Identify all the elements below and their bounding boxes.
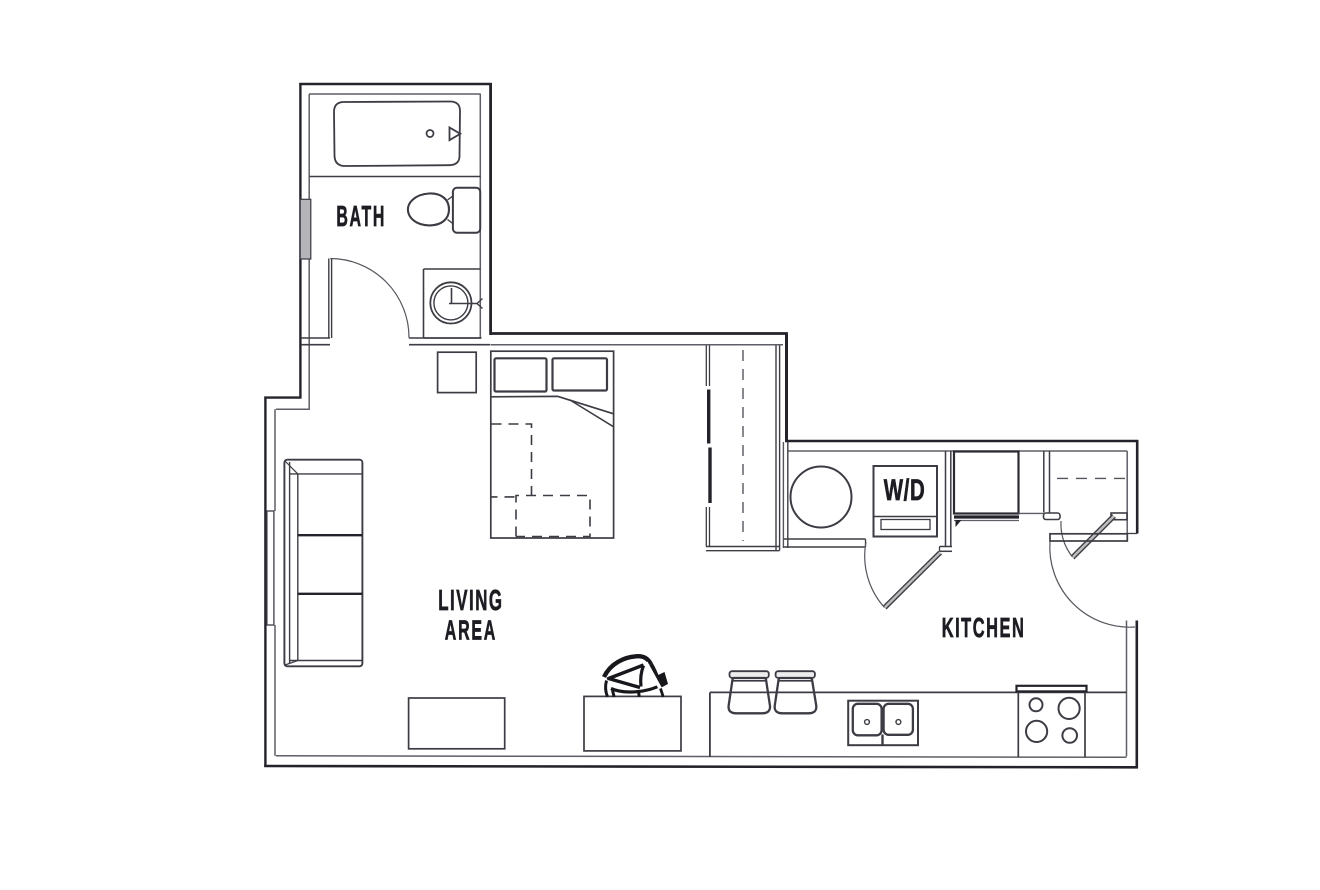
- svg-text:KITCHEN: KITCHEN: [942, 612, 1026, 643]
- svg-text:W/D: W/D: [884, 474, 926, 507]
- svg-text:BATH: BATH: [336, 201, 386, 233]
- svg-text:AREA: AREA: [445, 615, 497, 646]
- svg-text:LIVING: LIVING: [438, 585, 503, 617]
